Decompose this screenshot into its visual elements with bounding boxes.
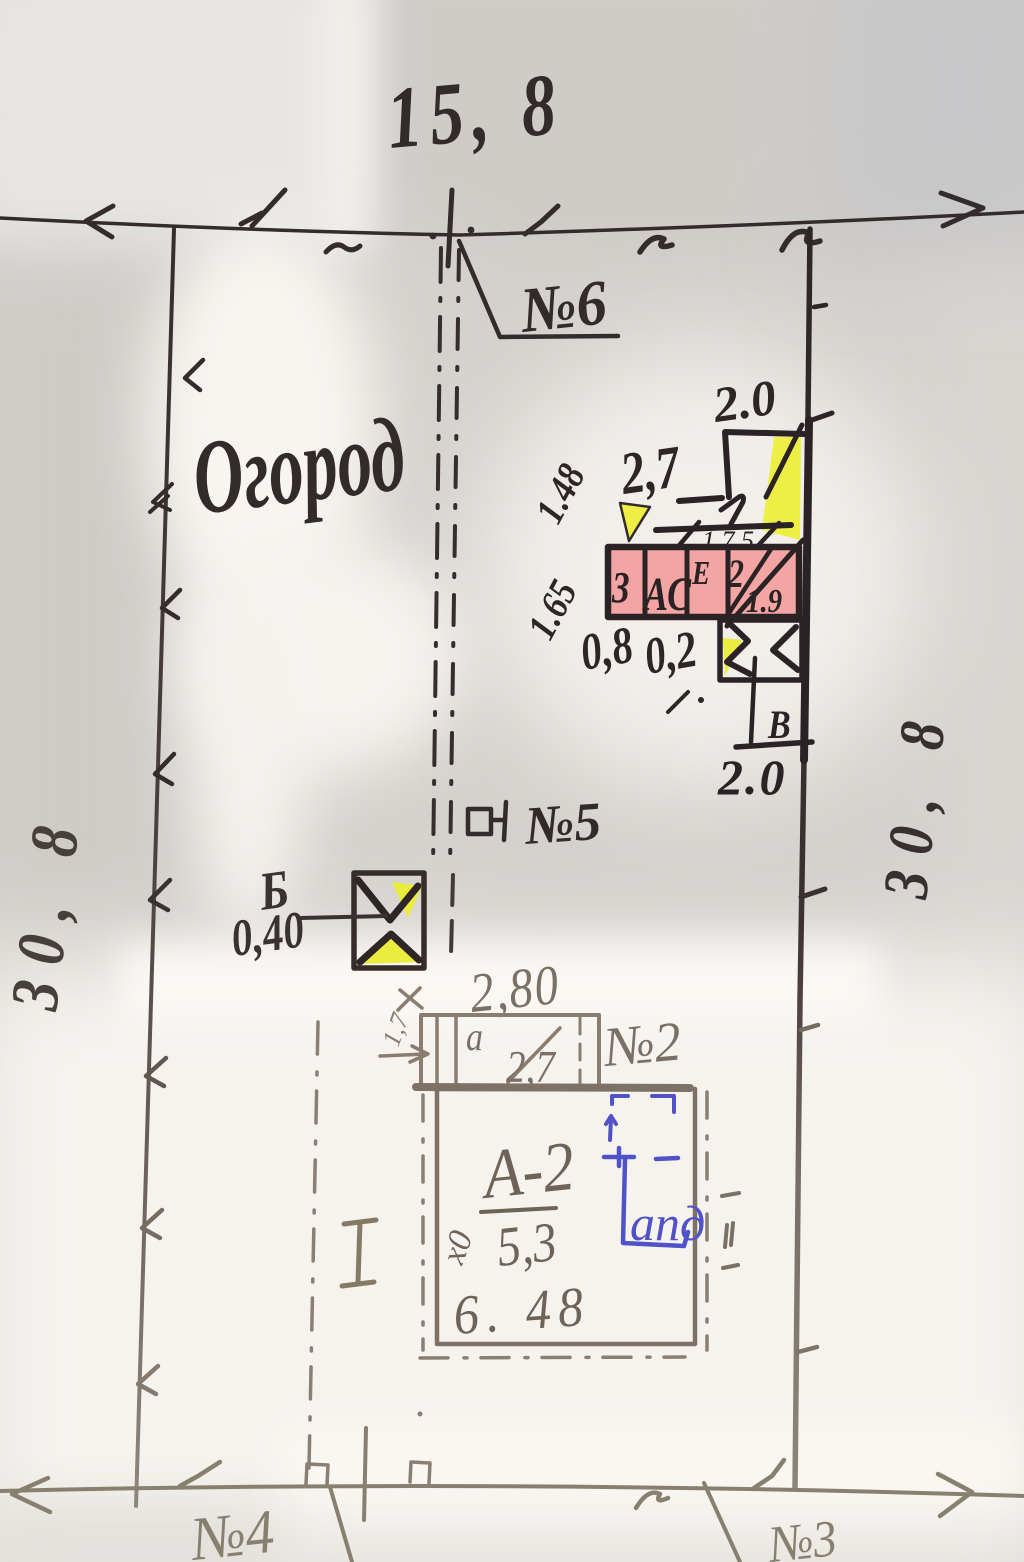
svg-text:3: 3 (611, 562, 629, 612)
svg-text:2,7: 2,7 (616, 433, 686, 508)
svg-text:2: 2 (727, 552, 744, 596)
svg-text:а: а (466, 1016, 483, 1060)
svg-text:№6: №6 (516, 266, 611, 347)
svg-text:№5: №5 (522, 791, 603, 856)
svg-text:АС: АС (641, 568, 691, 621)
svg-text:0,2: 0,2 (640, 620, 701, 686)
svg-text:15, 8: 15, 8 (383, 56, 567, 168)
svg-text:5,3: 5,3 (494, 1212, 560, 1279)
svg-text:апд: апд (630, 1195, 705, 1251)
svg-text:0,8: 0,8 (576, 616, 637, 682)
svg-text:Е: Е (691, 554, 710, 592)
svg-text:0,40: 0,40 (228, 901, 308, 968)
svg-text:2.0: 2.0 (717, 749, 787, 805)
svg-text:2.0: 2.0 (709, 369, 780, 433)
svg-text:№4: №4 (186, 1497, 277, 1562)
svg-text:№2: №2 (600, 1009, 684, 1078)
svg-text:А-2: А-2 (476, 1128, 578, 1214)
svg-text:6. 48: 6. 48 (452, 1275, 593, 1346)
svg-text:№3: №3 (764, 1509, 839, 1562)
